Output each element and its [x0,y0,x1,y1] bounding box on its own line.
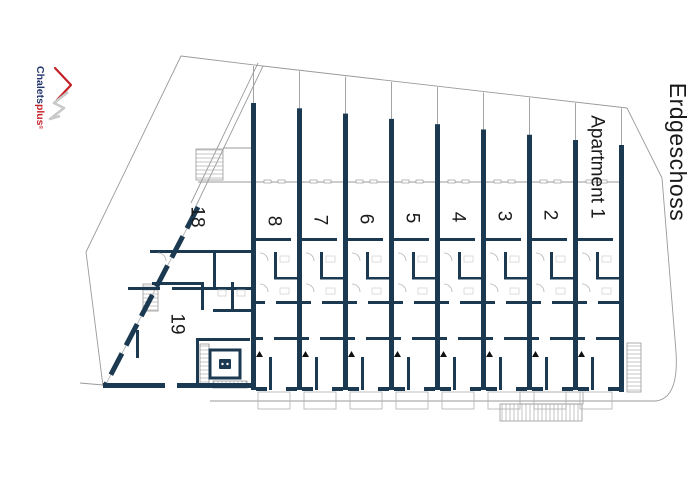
unit-divider-wall [481,129,486,390]
logo-text-plus: plus [34,104,46,126]
unit-wall [348,337,355,340]
unit-wall [348,238,383,241]
bath-fixture [372,288,381,294]
unit-wall [440,238,475,241]
unit-wall [578,238,613,241]
door-arc [490,284,498,292]
apartment-number-label: 7 [310,215,331,226]
unit-wall [598,301,619,304]
unit-wall [506,301,527,304]
unit-wall [458,252,461,279]
unit-wall [366,252,369,279]
bath-fixture [418,256,427,262]
apt19-fixture [218,290,226,296]
unit-wall [591,357,594,390]
bath-fixture [326,256,335,262]
door-arc [260,284,268,292]
unit-wall [440,301,449,304]
window-tick [448,180,455,183]
apt19-wall [231,282,234,312]
unit-wall [274,337,297,340]
apartment-number-label: 4 [448,212,469,223]
apt18-wall [172,287,251,290]
apt18-wall [213,253,216,287]
apartment-number-label: 2 [540,210,561,221]
unit-wall [256,238,291,241]
door-arc [306,284,314,292]
terrace-outline [258,392,290,409]
unit-wall [550,277,573,280]
window-tick [356,180,363,183]
unit-wall [460,301,481,304]
door-arc [352,284,360,292]
unit-divider-wall [297,108,302,390]
door-arc [352,253,360,261]
logo-text-chalets: Chalets [34,66,46,104]
unit-wall [412,277,435,280]
unit-divider-wall [389,119,394,390]
unit-wall [532,238,567,241]
window-tick [324,180,331,183]
elevator-icon-dot [226,363,228,365]
door-arc [444,284,452,292]
door-arc [398,284,406,292]
unit-divider-wall [527,135,532,390]
unit-wall [596,337,619,340]
unit-wall [302,301,311,304]
ramp-stairs-hatch-icon [196,149,223,180]
unit-wall [562,387,573,391]
unit-wall [274,252,277,279]
apt19-wall [152,282,204,285]
unit-wall [578,387,589,391]
entrance-marker-icon [532,351,539,357]
bath-fixture [326,288,335,294]
window-tick [494,180,501,183]
unit-wall [578,301,587,304]
unit-wall [407,357,410,390]
unit-wall [440,387,451,391]
bath-fixture [464,256,473,262]
apt19-wall [201,282,204,310]
door-arc [536,253,544,261]
unit-wall [348,301,357,304]
unit-wall [378,387,389,391]
unit-wall [532,301,541,304]
unit-wall [552,301,573,304]
unit-wall [276,301,297,304]
apartment-number-label: 8 [264,216,285,227]
unit-wall [256,301,265,304]
site-outline-top-edge [263,66,627,108]
entrance-marker-icon [302,351,309,357]
right-stairs-hatch-icon [627,343,641,392]
floorplan-page: 8765432Apartment 11819 Erdgeschoss Chale… [0,0,700,500]
unit-wall [412,252,415,279]
terrace-outline [442,392,474,409]
bath-fixture [464,288,473,294]
unit-divider-wall [251,103,256,390]
bath-fixture [602,256,611,262]
logo-text: Chaletsplus® [34,66,46,130]
unit-wall [486,337,493,340]
apartment-19-core [103,282,251,388]
floorplan-drawing: 8765432Apartment 11819 Erdgeschoss Chale… [0,0,700,500]
apt18-wall [128,287,160,290]
bath-fixture [602,288,611,294]
unit-wall [332,387,343,391]
unit-wall [596,277,619,280]
apt19-wall [136,330,139,358]
door-arc [444,253,452,261]
entrance-marker-icon [486,351,493,357]
bath-fixture [280,288,289,294]
unit-wall [414,301,435,304]
door-arc [490,253,498,261]
core-wall-top [196,338,250,341]
unit-wall [550,337,573,340]
apartment-number-label: 18 [187,206,208,227]
window-tick [370,180,377,183]
window-tick [278,180,285,183]
unit-wall [516,387,527,391]
window-tick [554,180,561,183]
bath-fixture [510,256,519,262]
unit-wall [361,357,364,390]
apt19-fixture [237,290,245,296]
unit-wall [394,387,405,391]
entrance-marker-icon [578,351,585,357]
unit-wall [470,387,481,391]
window-tick [264,180,271,183]
unit-wall [302,337,309,340]
site-outline [80,56,676,401]
unit-wall [256,337,263,340]
chaletsplus-logo: Chaletsplus® [34,66,71,130]
bath-fixture [510,288,519,294]
unit-wall [440,337,447,340]
unit-wall [486,238,521,241]
door-arc [306,253,314,261]
bath-fixture [556,256,565,262]
unit-wall [394,301,403,304]
unit-wall [504,277,527,280]
entrance-marker-icon [394,351,401,357]
entrance-marker-icon [440,351,447,357]
logo-mountain-icon [50,92,68,119]
unit-wall [545,357,548,390]
unit-wall [366,337,389,340]
unit-wall [286,387,297,391]
core-wall-left [196,338,199,388]
unit-wall [394,238,429,241]
window-tick [540,180,547,183]
unit-wall [486,301,495,304]
terrace-outline [580,392,612,409]
apt18-wall [150,250,251,253]
door-arc [536,284,544,292]
unit-wall [596,252,599,279]
window-tick [416,180,423,183]
unit-wall [458,277,481,280]
unit-wall [315,357,318,390]
terrace-outline [304,392,336,409]
unit-wall [269,357,272,390]
bath-fixture [372,256,381,262]
window-tick [508,180,515,183]
unit-wall [368,301,389,304]
apartment-number-label: 6 [356,214,377,225]
door-arc [582,284,590,292]
unit-wall [532,337,539,340]
unit-wall [550,252,553,279]
terrace-outline [396,392,428,409]
unit-wall [320,277,343,280]
building-bottom-wall [103,383,165,388]
unit-wall [394,337,401,340]
unit-wall [366,277,389,280]
unit-wall [504,252,507,279]
unit-wall [320,252,323,279]
unit-wall [302,387,313,391]
unit-wall [532,387,543,391]
unit-wall [302,238,337,241]
bath-fixture [418,288,427,294]
site-outline-left-tick [80,383,103,385]
terrace-outline [350,392,382,409]
apartment-number-label: 5 [402,213,423,224]
door-arc [398,253,406,261]
unit-wall [348,387,359,391]
apt18-door-arc [158,253,166,261]
door-arc [582,253,590,261]
unit-wall [412,337,435,340]
floor-title: Erdgeschoss [665,83,691,221]
bottom-stairs-hatch-icon [500,404,582,421]
unit-wall [504,337,527,340]
entrance-marker-icon [348,351,355,357]
unit-divider-wall [573,140,578,390]
unit-wall [458,337,481,340]
bottom-terrace-box [520,392,583,404]
entrance-marker-icon [256,351,263,357]
unit-wall [320,337,343,340]
unit-divider-wall [435,124,440,390]
unit-wall [256,387,267,391]
unit-wall [486,387,497,391]
logo-registered-mark: ® [37,126,44,130]
window-tick [402,180,409,183]
window-tick [462,180,469,183]
elevator-icon-dot [221,363,223,365]
apartment-name-label: Apartment 1 [587,115,608,219]
unit-wall [608,387,619,391]
core-stairs-hatch-icon [200,344,209,386]
window-tick [310,180,317,183]
apartment-number-label: 19 [167,313,188,334]
unit-wall [499,357,502,390]
right-exterior-wall [619,145,624,392]
unit-wall [578,337,585,340]
door-arc [260,253,268,261]
unit-wall [274,277,297,280]
unit-wall [424,387,435,391]
unit-wall [453,357,456,390]
bath-fixture [556,288,565,294]
building-bottom-wall [177,383,251,388]
unit-wall [322,301,343,304]
elevator-icon [219,359,231,369]
unit-divider-wall [343,114,348,390]
apartment-number-label: 3 [494,211,515,222]
bath-fixture [280,256,289,262]
